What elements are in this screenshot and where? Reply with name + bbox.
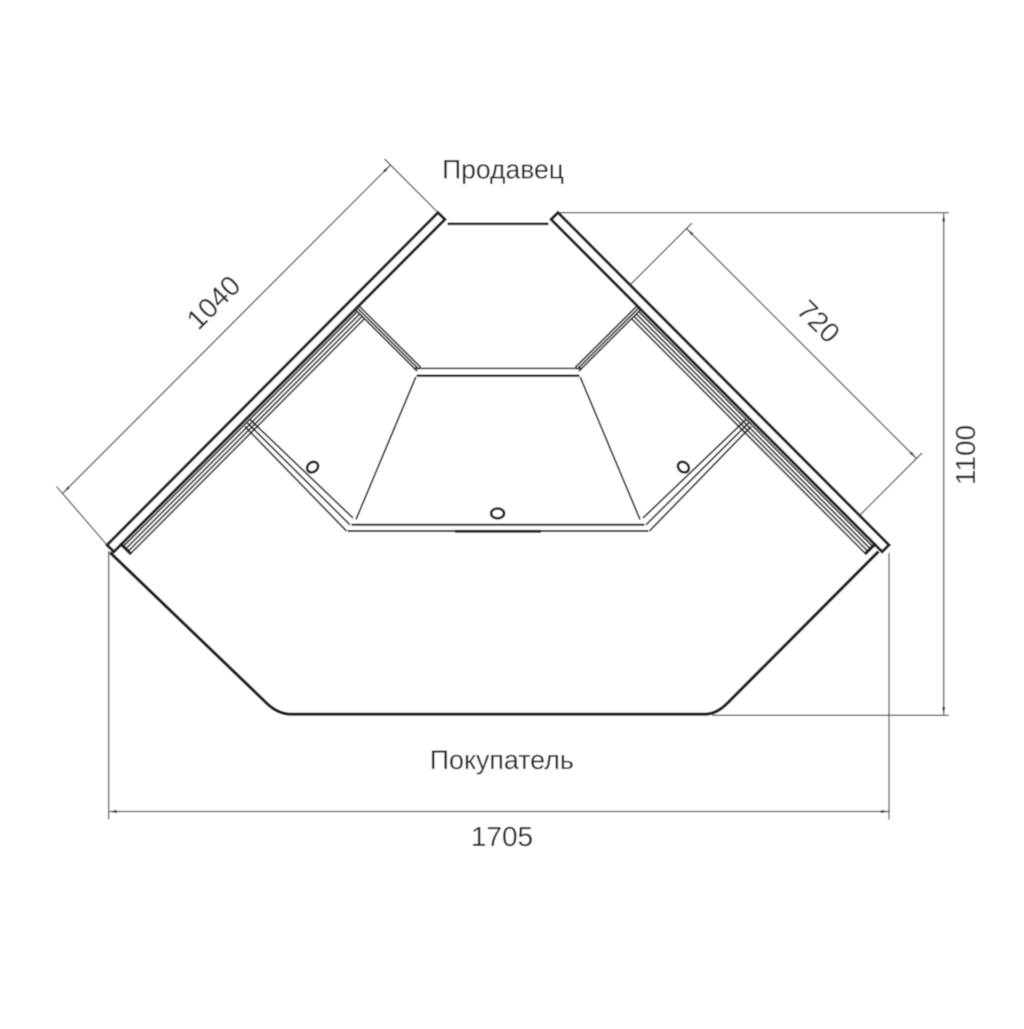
svg-text:1705: 1705 <box>471 821 533 852</box>
svg-text:Продавец: Продавец <box>442 155 564 185</box>
svg-text:1100: 1100 <box>950 425 981 485</box>
svg-text:Покупатель: Покупатель <box>430 745 574 775</box>
